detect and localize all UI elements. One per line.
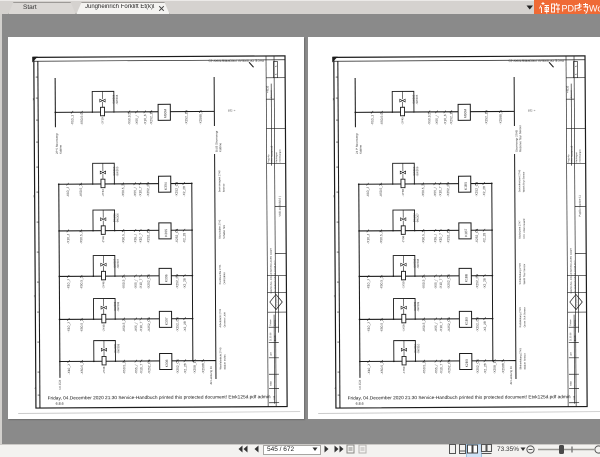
- svg-text:-2Y48: -2Y48: [103, 366, 106, 374]
- svg-text:K308: K308: [165, 359, 169, 367]
- svg-text:-X2588_A: -X2588_A: [499, 109, 503, 124]
- svg-text:Ruttelleitung 27#9: Ruttelleitung 27#9: [519, 307, 522, 328]
- svg-text:Austragen: Austragen: [275, 151, 278, 162]
- svg-text:-X252_1B: -X252_1B: [449, 111, 453, 125]
- svg-text:-X10_J: -X10_J: [67, 322, 71, 333]
- svg-text:Bremsmagnet 27#8: Bremsmagnet 27#8: [218, 170, 221, 192]
- svg-text:Werth Teyr Sensor: Werth Teyr Sensor: [523, 264, 526, 285]
- svg-text:Sensorheizent 27#B: Sensorheizent 27#B: [518, 169, 521, 192]
- svg-text:-X10_J: -X10_J: [66, 233, 70, 244]
- svg-text:-9W304: -9W304: [115, 94, 119, 104]
- svg-text:-X50.5_2: -X50.5_2: [422, 276, 426, 289]
- svg-text:Blinkerleitung 27#B: Blinkerleitung 27#B: [519, 348, 522, 370]
- svg-text:ges: ges: [569, 351, 572, 355]
- svg-text:-X10_1: -X10_1: [70, 115, 74, 126]
- svg-text:K2B0: K2B0: [465, 359, 469, 367]
- svg-text:-X2_28: -X2_28: [483, 363, 487, 374]
- svg-text:-X252_C3: -X252_C3: [146, 182, 150, 197]
- svg-text:-X2_28: -X2_28: [482, 186, 486, 197]
- svg-text:-X50.5_2: -X50.5_2: [421, 230, 425, 243]
- svg-text:-X252_C3: -X252_C3: [475, 182, 479, 197]
- svg-text:-9W305: -9W305: [115, 166, 119, 176]
- svg-text:K1B5: K1B5: [464, 182, 468, 190]
- svg-text:6.8.6: 6.8.6: [56, 402, 64, 406]
- svg-text:Ernennt: Ernennt: [270, 90, 273, 98]
- svg-text:Bearb: Bearb: [274, 334, 277, 341]
- svg-text:Am Stadtrand 35 Tel 07035 04: Am Stadtrand 35 Tel 07035 04-0: [574, 260, 577, 294]
- svg-text:-X252_1B: -X252_1B: [149, 111, 153, 125]
- svg-text:Drehzahler: Drehzahler: [223, 272, 226, 284]
- svg-text:-X10_7: -X10_7: [139, 364, 143, 375]
- svg-text:Name: Name: [574, 319, 577, 326]
- svg-text:-X252_C3: -X252_C3: [175, 229, 179, 244]
- svg-text:-X50.5_J: -X50.5_J: [379, 231, 383, 244]
- svg-text:Schleifleitung 27#B: Schleifleitung 27#B: [519, 263, 522, 285]
- svg-text:-X10_J: -X10_J: [66, 279, 70, 290]
- svg-text:-X10_J: -X10_J: [66, 187, 70, 198]
- svg-text:-X50.5_J: -X50.5_J: [379, 276, 383, 289]
- svg-text:B32 -+: B32 -+: [228, 109, 236, 112]
- svg-text:Bremse: Bremse: [223, 183, 226, 192]
- svg-text:-X252_C3: -X252_C3: [447, 359, 451, 374]
- svg-text:-X252_C3: -X252_C3: [447, 317, 451, 332]
- svg-text:Am Stadtrand 35 Tel 07035 04: Am Stadtrand 35 Tel 07035 04-0: [274, 260, 277, 294]
- svg-text:-9W309: -9W309: [416, 301, 420, 311]
- svg-text:Reserve Teyr Sensor: Reserve Teyr Sensor: [518, 125, 522, 152]
- svg-text:-1Y5B: -1Y5B: [402, 189, 405, 197]
- svg-text:Kabine: Kabine: [59, 145, 63, 154]
- svg-text:-X50.5_2: -X50.5_2: [421, 184, 425, 197]
- svg-text:-X10_J: -X10_J: [67, 364, 71, 375]
- svg-text:-X50.5_2: -X50.5_2: [122, 361, 126, 374]
- svg-text:-X55_/: -X55_/: [434, 279, 438, 289]
- svg-text:-X10_7: -X10_7: [139, 278, 143, 289]
- svg-text:ETX-Kombi 125: ETX-Kombi 125: [571, 145, 574, 163]
- svg-text:-1Y59: -1Y59: [402, 281, 405, 289]
- svg-text:SAMSUNG- INDUSTRIEANLAGEN Gmb: SAMSUNG- INDUSTRIEANLAGEN GmbH: [570, 248, 573, 294]
- svg-text:-X2_28: -X2_28: [183, 278, 187, 289]
- svg-text:Friday, 04.December 2020 21:30: Friday, 04.December 2020 21:30 Service-H…: [48, 394, 271, 400]
- svg-text:-X252_C3: -X252_C3: [475, 274, 479, 289]
- svg-text:-X2_28: -X2_28: [482, 233, 486, 244]
- svg-text:-X55_/: -X55_/: [133, 234, 137, 244]
- svg-text:-X252_1B: -X252_1B: [184, 110, 188, 124]
- svg-text:-X50.5_2: -X50.5_2: [122, 319, 126, 332]
- svg-text:Datum: Datum: [569, 319, 572, 326]
- svg-text:-9W307: -9W307: [116, 258, 120, 268]
- svg-text:-X55_/: -X55_/: [434, 322, 438, 332]
- svg-text:Wo: Wo: [589, 4, 600, 14]
- svg-text:-X55_/: -X55_/: [134, 365, 138, 375]
- svg-text:-X50.5_J: -X50.5_J: [80, 319, 84, 332]
- svg-text:-X2588_3: -X2588_3: [201, 360, 205, 374]
- svg-text:-2Y46: -2Y46: [102, 281, 105, 289]
- svg-text:Schalter Sitz: Schalter Sitz: [223, 224, 226, 239]
- svg-text:-X10_7: -X10_7: [439, 233, 443, 244]
- svg-text:-X50.5_J: -X50.5_J: [380, 361, 384, 374]
- svg-text:-X10_7: -X10_7: [139, 233, 143, 244]
- svg-text:-X50.5_J: -X50.5_J: [380, 319, 384, 332]
- svg-text:-X50.5_J: -X50.5_J: [80, 361, 84, 374]
- svg-text:DFC Linien Guard: DFC Linien Guard: [523, 218, 526, 239]
- svg-text:Sitzschalter 27#2: Sitzschalter 27#2: [218, 219, 221, 239]
- svg-text:K304: K304: [164, 182, 168, 190]
- svg-text:-X252_C3: -X252_C3: [447, 274, 451, 289]
- svg-text:-X252_C3: -X252_C3: [175, 274, 179, 289]
- svg-text:Bearb: Bearb: [574, 334, 577, 341]
- svg-text:-1Y60: -1Y60: [403, 366, 406, 374]
- svg-text:-X10_7: -X10_7: [439, 321, 443, 332]
- svg-text:Werth Teyr Sensor: Werth Teyr Sensor: [523, 171, 526, 192]
- svg-text:K1BB: K1BB: [464, 273, 468, 282]
- svg-text:Friday, 04.December 2020 21:30: Friday, 04.December 2020 21:30 Service-H…: [348, 394, 571, 400]
- svg-text:-1Y5B: -1Y5B: [402, 235, 405, 243]
- svg-text:-X252_C3: -X252_C3: [147, 274, 151, 289]
- svg-text:-X50.5_J: -X50.5_J: [79, 231, 83, 244]
- svg-text:Blinker Sensor: Blinker Sensor: [524, 353, 527, 369]
- svg-text:-X2588_A: -X2588_A: [199, 109, 203, 124]
- svg-text:PAGE OF BREAK PROPRIETARY (c): PAGE OF BREAK PROPRIETARY (c): [509, 58, 564, 62]
- svg-text:Zeichnungen: Zeichnungen: [579, 149, 582, 163]
- svg-text:Sitzheizent 27#7: Sitzheizent 27#7: [518, 220, 521, 239]
- svg-text:-X252_C3: -X252_C3: [475, 229, 479, 244]
- svg-text:Kabine: Kabine: [218, 143, 222, 152]
- svg-text:-X2_28: -X2_28: [183, 363, 187, 374]
- svg-text:-9W305: -9W305: [415, 94, 419, 104]
- svg-text:ETX-Kombi 125: ETX-Kombi 125: [271, 145, 274, 163]
- svg-text:-X50.5:2: -X50.5:2: [427, 113, 431, 125]
- svg-text:K1B7: K1B7: [464, 228, 468, 236]
- svg-text:-X258_1: -X258_1: [193, 361, 197, 373]
- svg-text:Arbeitslicht 27#3: Arbeitslicht 27#3: [219, 308, 222, 327]
- svg-text:-X50.5_2: -X50.5_2: [422, 319, 426, 332]
- svg-text:-X50.5_J: -X50.5_J: [79, 184, 83, 197]
- svg-text:-1Y59: -1Y59: [403, 324, 406, 332]
- svg-text:Ruckleuchte 27#1: Ruckleuchte 27#1: [219, 264, 222, 285]
- svg-text:6 Bl: 6 Bl: [573, 395, 576, 399]
- svg-text:-9W309: -9W309: [116, 343, 120, 353]
- svg-text:-X258_1: -X258_1: [493, 361, 497, 373]
- svg-text:K306: K306: [164, 274, 168, 282]
- svg-text:PAGE OF BREAK PROPRIETARY (c): PAGE OF BREAK PROPRIETARY (c): [209, 58, 264, 62]
- svg-text:Grosses Licht: Grosses Licht: [223, 312, 226, 328]
- svg-text:-X10_7: -X10_7: [439, 364, 443, 375]
- svg-text:-X50.5:1: -X50.5:1: [380, 113, 384, 125]
- svg-text:-X55_/: -X55_/: [133, 187, 137, 197]
- svg-text:M50M: M50M: [463, 109, 467, 118]
- svg-text:V65/-16 E05/16 |: V65/-16 E05/16 |: [279, 196, 282, 216]
- svg-text:4# Leistung 1#: 4# Leistung 1#: [209, 366, 213, 385]
- svg-text:Zeichnungen: Zeichnungen: [279, 149, 282, 163]
- svg-text:-X55_/: -X55_/: [135, 115, 139, 125]
- svg-text:-9W308: -9W308: [116, 301, 120, 311]
- svg-text:Austragen: Austragen: [575, 151, 578, 162]
- svg-text:-2Y48: -2Y48: [103, 324, 106, 332]
- svg-text:Papilio Stanlee 11: Papilio Stanlee 11: [579, 195, 582, 217]
- svg-text:-X252_C3: -X252_C3: [147, 317, 151, 332]
- svg-text:-X10_J: -X10_J: [366, 279, 370, 290]
- svg-text:1.6.1/2#: 1.6.1/2#: [358, 379, 362, 390]
- svg-text:-X252_C3: -X252_C3: [147, 359, 151, 374]
- svg-text:-9W306: -9W306: [116, 213, 120, 223]
- svg-text:-9W310: -9W310: [416, 343, 420, 353]
- svg-text:-X50.5_2: -X50.5_2: [122, 276, 126, 289]
- svg-text:-X10_J: -X10_J: [367, 364, 371, 375]
- svg-text:21.35.06: 21.35.06: [269, 332, 272, 341]
- svg-text:-X50.5_2: -X50.5_2: [121, 184, 125, 197]
- svg-text:-X10_J: -X10_J: [367, 322, 371, 333]
- svg-text:6.8.6: 6.8.6: [356, 402, 364, 406]
- svg-text:PDF: PDF: [562, 4, 581, 14]
- svg-text:-X2_28: -X2_28: [483, 278, 487, 289]
- svg-text:-X252_C3: -X252_C3: [446, 229, 450, 244]
- svg-text:-X2_28: -X2_28: [182, 233, 186, 244]
- svg-text:-X10_J: -X10_J: [366, 187, 370, 198]
- svg-text:Blinker rechts: Blinker rechts: [224, 354, 227, 370]
- svg-text:-X55_/: -X55_/: [433, 187, 437, 197]
- svg-text:-X50.5_2: -X50.5_2: [121, 230, 125, 243]
- svg-text:-X55_/: -X55_/: [434, 365, 438, 375]
- svg-text:-X10_1: -X10_1: [370, 115, 374, 126]
- svg-text:-X252_C3: -X252_C3: [176, 359, 180, 374]
- svg-text:4# Leistung 1#: 4# Leistung 1#: [509, 366, 513, 385]
- svg-text:Blatt: Blatt: [269, 381, 272, 386]
- svg-text:-9W308: -9W308: [416, 258, 420, 268]
- svg-text:K307: K307: [165, 317, 169, 325]
- svg-text:-X2_28: -X2_28: [483, 321, 487, 332]
- svg-text:+4135: +4135: [566, 85, 569, 93]
- svg-text:-9W306: -9W306: [415, 166, 419, 176]
- svg-text:-X10_7: -X10_7: [139, 321, 143, 332]
- svg-text:-X252_C3: -X252_C3: [475, 317, 479, 332]
- svg-text:-9W307: -9W307: [416, 213, 420, 223]
- svg-text:-X50.5_J: -X50.5_J: [79, 276, 83, 289]
- svg-text:-X50.5:1: -X50.5:1: [80, 113, 84, 125]
- svg-text:Ernennt: Ernennt: [570, 90, 573, 98]
- svg-text:ges: ges: [269, 351, 272, 355]
- svg-text:-X2588_3: -X2588_3: [501, 360, 505, 374]
- svg-text:-X55_/: -X55_/: [433, 234, 437, 244]
- svg-text:-X50.5:2: -X50.5:2: [127, 113, 131, 125]
- svg-text:-X50.5_J: -X50.5_J: [379, 184, 383, 197]
- svg-text:Blatt: Blatt: [569, 381, 572, 386]
- svg-text:K305: K305: [164, 229, 168, 237]
- svg-text:-X10_7: -X10_7: [439, 278, 443, 289]
- svg-text:-X10_J: -X10_J: [366, 233, 370, 244]
- svg-text:Westfalenlicht 27#B: Westfalenlicht 27#B: [219, 347, 222, 369]
- svg-text:-X252_C3: -X252_C3: [175, 317, 179, 332]
- svg-text:21.35.06: 21.35.06: [569, 332, 572, 341]
- svg-text:-2Y44: -2Y44: [102, 189, 105, 197]
- svg-text:-X2_28: -X2_28: [182, 186, 186, 197]
- svg-text:-X55_/: -X55_/: [435, 115, 439, 125]
- svg-text:K1B9: K1B9: [465, 317, 469, 325]
- svg-text:-X252_C3: -X252_C3: [146, 229, 150, 244]
- svg-text:1.6.1/2#: 1.6.1/2#: [58, 379, 62, 390]
- svg-text:-X252_C3: -X252_C3: [446, 182, 450, 197]
- svg-text:Datum: Datum: [269, 319, 272, 326]
- svg-text:+4135: +4135: [266, 85, 269, 93]
- svg-text:-2Y46: -2Y46: [102, 235, 105, 243]
- svg-text:-X252_C3: -X252_C3: [476, 359, 480, 374]
- svg-text:Kabine: Kabine: [359, 145, 363, 154]
- svg-text:-X50.5_2: -X50.5_2: [422, 361, 426, 374]
- svg-text:SAMSUNG- INDUSTRIEANLAGEN Gmb: SAMSUNG- INDUSTRIEANLAGEN GmbH: [270, 248, 273, 294]
- svg-text:6 Bl: 6 Bl: [273, 395, 276, 399]
- svg-text:-X252_1B: -X252_1B: [484, 110, 488, 124]
- svg-text:-X252_C3: -X252_C3: [175, 182, 179, 197]
- svg-text:M50M: M50M: [163, 109, 167, 118]
- svg-text:-X10_6: -X10_6: [443, 114, 447, 125]
- svg-text:-X55_/: -X55_/: [134, 279, 138, 289]
- svg-text:-X55_/: -X55_/: [134, 322, 138, 332]
- svg-text:-X2_28: -X2_28: [183, 321, 187, 332]
- svg-text:Name: Name: [274, 319, 277, 326]
- svg-text:-X10_7: -X10_7: [438, 186, 442, 197]
- svg-text:-2Y45: -2Y45: [401, 117, 404, 125]
- svg-text:-X10_7: -X10_7: [138, 186, 142, 197]
- svg-text:Gross Sch Sensor: Gross Sch Sensor: [523, 307, 526, 327]
- svg-text:-X10_6: -X10_6: [143, 114, 147, 125]
- svg-text:-2Y19: -2Y19: [101, 117, 104, 125]
- svg-text:B32 -+: B32 -+: [528, 109, 536, 112]
